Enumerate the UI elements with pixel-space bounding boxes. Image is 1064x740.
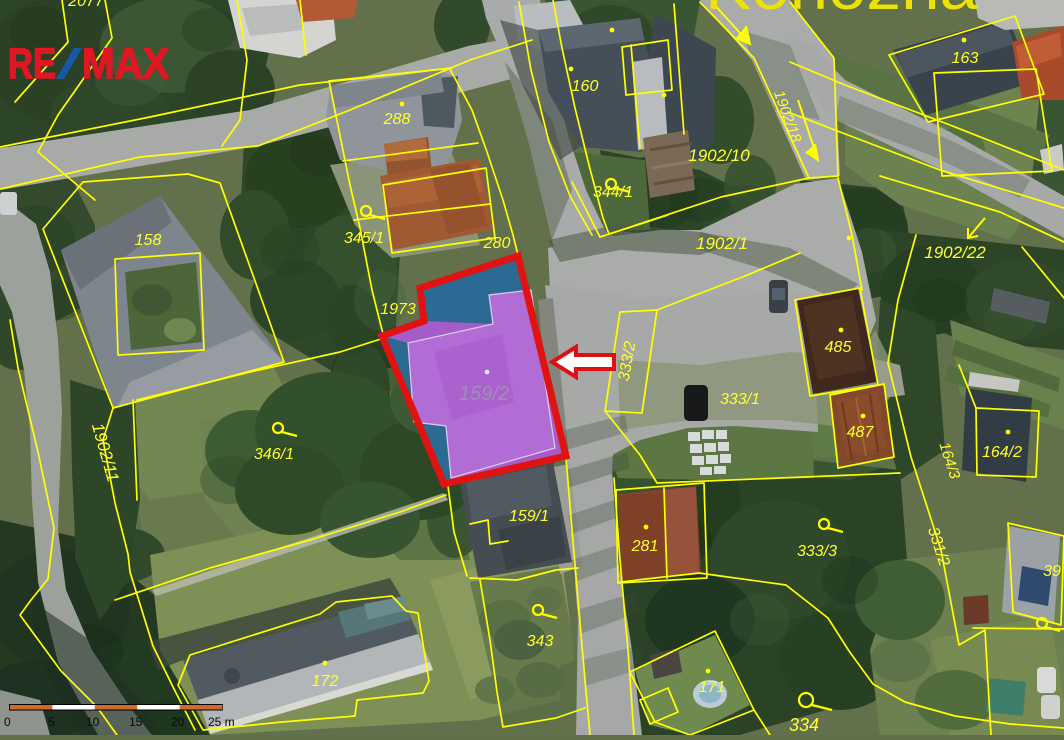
svg-text:10: 10 <box>86 715 100 729</box>
svg-text:1902/22: 1902/22 <box>924 243 986 262</box>
svg-text:280: 280 <box>483 235 511 252</box>
svg-text:281: 281 <box>631 538 659 555</box>
svg-text:343: 343 <box>527 633 554 650</box>
svg-text:20: 20 <box>171 715 185 729</box>
svg-text:1973: 1973 <box>380 301 416 318</box>
svg-text:39: 39 <box>1043 563 1061 580</box>
svg-text:163: 163 <box>952 50 979 67</box>
svg-text:25 m: 25 m <box>208 715 235 729</box>
svg-text:164/2: 164/2 <box>982 444 1022 461</box>
svg-text:RE: RE <box>8 40 56 88</box>
svg-text:334: 334 <box>789 715 819 735</box>
svg-text:5: 5 <box>48 715 55 729</box>
svg-text:333/1: 333/1 <box>720 391 760 408</box>
svg-text:288: 288 <box>383 111 411 128</box>
svg-text:160: 160 <box>572 78 599 95</box>
svg-text:15: 15 <box>129 715 143 729</box>
svg-text:346/1: 346/1 <box>254 446 294 463</box>
svg-text:172: 172 <box>312 673 339 690</box>
svg-text:333/3: 333/3 <box>797 543 837 560</box>
svg-text:MAX: MAX <box>82 40 169 88</box>
svg-text:159/2: 159/2 <box>459 383 509 405</box>
svg-text:171: 171 <box>699 679 726 696</box>
svg-text:485: 485 <box>825 339 852 356</box>
svg-text:159/1: 159/1 <box>509 508 549 525</box>
svg-text:344/1: 344/1 <box>593 184 633 201</box>
svg-text:487: 487 <box>847 424 875 441</box>
svg-text:0: 0 <box>4 715 11 729</box>
svg-text:Kohozna: Kohozna <box>705 0 978 23</box>
svg-text:345/1: 345/1 <box>344 230 384 247</box>
svg-text:1902/1: 1902/1 <box>696 234 748 253</box>
svg-text:158: 158 <box>135 232 162 249</box>
svg-text:2077: 2077 <box>67 0 105 10</box>
svg-text:1902/10: 1902/10 <box>688 146 750 165</box>
